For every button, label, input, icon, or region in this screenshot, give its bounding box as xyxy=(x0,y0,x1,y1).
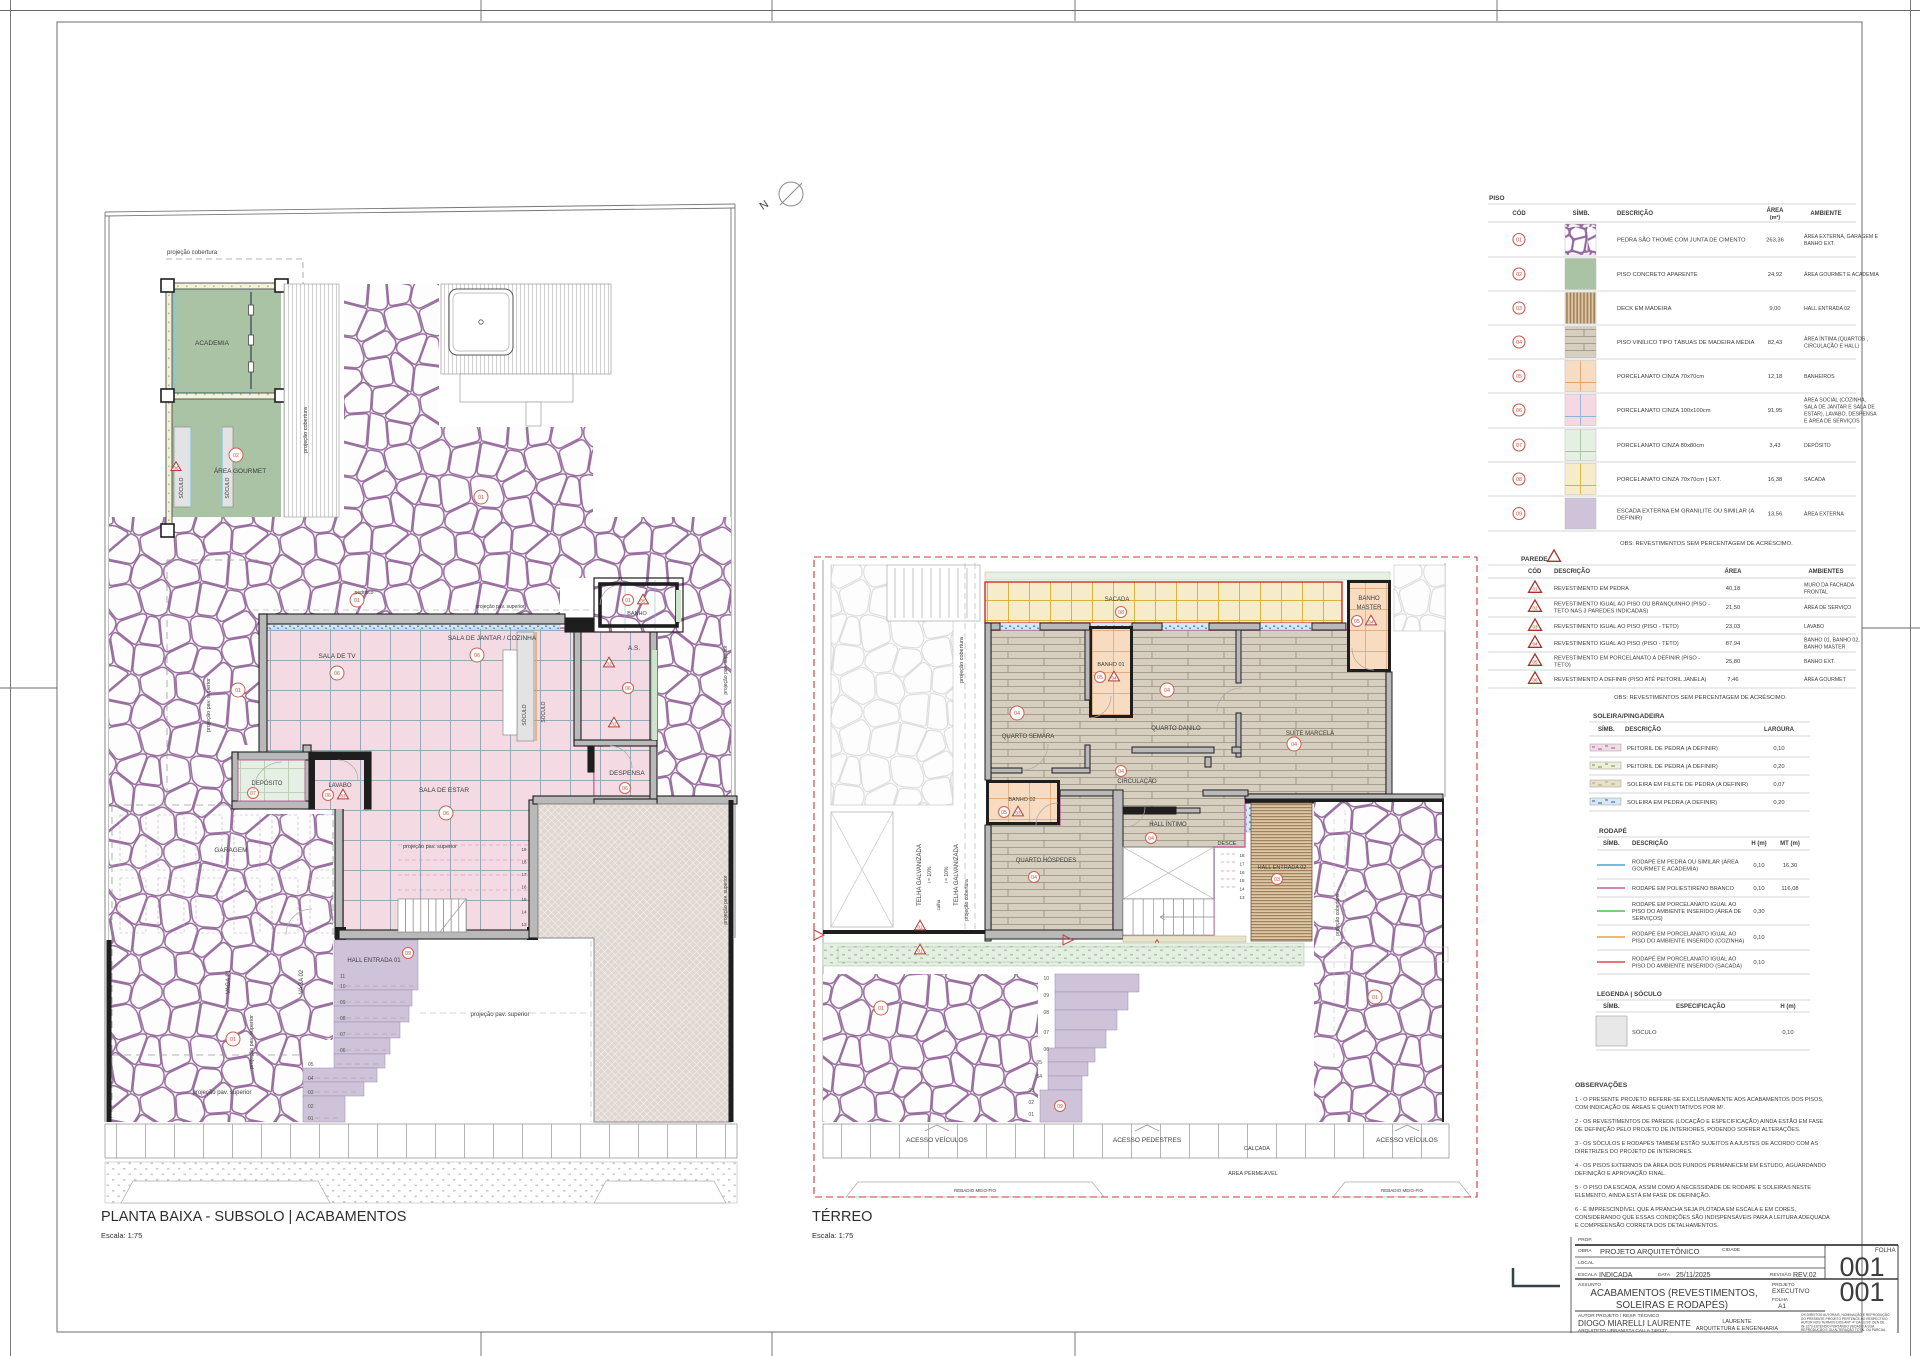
svg-text:17: 17 xyxy=(521,872,527,877)
svg-text:REVESTIMENTO EM PORCELANATO A: REVESTIMENTO EM PORCELANATO A DEFINIR (P… xyxy=(1554,656,1700,662)
svg-text:SACADA: SACADA xyxy=(1804,477,1826,483)
svg-text:9,00: 9,00 xyxy=(1769,306,1780,312)
svg-text:82,43: 82,43 xyxy=(1768,340,1783,346)
svg-text:CÓD: CÓD xyxy=(1528,567,1542,575)
svg-text:PISO: PISO xyxy=(1489,195,1505,202)
svg-text:ÁREA ÍNTIMA (QUARTOS ,: ÁREA ÍNTIMA (QUARTOS , xyxy=(1804,336,1868,343)
svg-text:01: 01 xyxy=(878,1006,884,1012)
svg-text:03: 03 xyxy=(1532,625,1538,630)
svg-text:DIRETRIZES DO PROJETO DE INTER: DIRETRIZES DO PROJETO DE INTERIORES. xyxy=(1575,1149,1693,1155)
svg-text:projeção pav. superior: projeção pav. superior xyxy=(206,678,212,732)
svg-text:09: 09 xyxy=(340,1000,346,1006)
svg-text:ACESSO VEÍCULOS: ACESSO VEÍCULOS xyxy=(906,1135,968,1144)
svg-text:AUTOR PROJETO / RESP. TÉCNICO: AUTOR PROJETO / RESP. TÉCNICO xyxy=(1578,1312,1659,1319)
svg-text:BANHEIROS: BANHEIROS xyxy=(1804,374,1835,380)
svg-text:BANHO 01, BANHO 02,: BANHO 01, BANHO 02, xyxy=(1804,638,1860,644)
svg-text:HALL ÍNTIMO: HALL ÍNTIMO xyxy=(1149,821,1187,828)
svg-text:SÓCULO: SÓCULO xyxy=(540,701,547,722)
svg-text:REVISÃO: REVISÃO xyxy=(1770,1271,1792,1278)
svg-text:05: 05 xyxy=(1097,675,1103,681)
svg-text:BANHO EXT.: BANHO EXT. xyxy=(1804,241,1835,247)
svg-text:13: 13 xyxy=(1239,895,1245,900)
svg-text:01: 01 xyxy=(917,949,923,954)
svg-text:08: 08 xyxy=(340,1016,346,1022)
svg-text:INDICADA: INDICADA xyxy=(1599,1272,1633,1279)
svg-text:05: 05 xyxy=(1516,374,1522,380)
svg-text:TETO NAS 3 PAREDES INDICADAS): TETO NAS 3 PAREDES INDICADAS) xyxy=(1554,609,1648,615)
svg-text:EXECUTIVO: EXECUTIVO xyxy=(1772,1288,1810,1295)
svg-text:projeção pav. superior: projeção pav. superior xyxy=(403,844,457,850)
svg-text:RODAPÉ EM POLIESTIRENO BRANCO: RODAPÉ EM POLIESTIRENO BRANCO xyxy=(1632,885,1735,892)
svg-text:06: 06 xyxy=(325,793,331,799)
svg-text:03: 03 xyxy=(340,794,346,799)
svg-text:AMBIENTES: AMBIENTES xyxy=(1808,569,1843,575)
svg-text:CONSIDERANDO QUE ESSAS CONDIÇÕ: CONSIDERANDO QUE ESSAS CONDIÇÕES SÃO IND… xyxy=(1575,1214,1830,1221)
svg-text:15: 15 xyxy=(521,897,527,902)
svg-text:DEFINIÇÃO E APROVAÇÃO FINAL.: DEFINIÇÃO E APROVAÇÃO FINAL. xyxy=(1575,1170,1666,1177)
svg-text:REBADIO MEIO-FIO: REBADIO MEIO-FIO xyxy=(1381,1188,1424,1193)
svg-text:E COMPREENSÃO CORRETA DOS DETA: E COMPREENSÃO CORRETA DOS DETALHAMENTOS. xyxy=(1575,1222,1719,1229)
svg-text:12,18: 12,18 xyxy=(1768,374,1783,380)
svg-text:25/11/2025: 25/11/2025 xyxy=(1676,1272,1711,1279)
svg-text:ACESSO VEÍCULOS: ACESSO VEÍCULOS xyxy=(1376,1135,1438,1144)
svg-text:0,30: 0,30 xyxy=(1753,909,1764,915)
svg-text:(m²): (m²) xyxy=(1770,214,1781,221)
svg-text:ESCADA EXTERNA EM GRANILITE OU: ESCADA EXTERNA EM GRANILITE OU SIMILAR (… xyxy=(1617,509,1754,515)
svg-text:14: 14 xyxy=(521,910,527,915)
svg-text:REPRODUÇÃO E OU ALTERAÇÃO TOTA: REPRODUÇÃO E OU ALTERAÇÃO TOTAL OU PARCI… xyxy=(1801,1327,1887,1332)
svg-text:CIDADE: CIDADE xyxy=(1722,1247,1740,1253)
svg-text:ESTAR), LAVABO, DESPENSA: ESTAR), LAVABO, DESPENSA xyxy=(1804,412,1877,418)
svg-text:04: 04 xyxy=(1036,1074,1042,1080)
svg-text:03: 03 xyxy=(1274,877,1280,883)
svg-text:01: 01 xyxy=(478,495,484,501)
svg-text:projeção pav. superior: projeção pav. superior xyxy=(249,1015,255,1069)
svg-text:16,30: 16,30 xyxy=(1783,863,1798,869)
svg-text:14: 14 xyxy=(1239,887,1245,892)
svg-text:SÍMB.: SÍMB. xyxy=(1598,725,1615,733)
svg-text:01: 01 xyxy=(917,925,923,930)
svg-text:PAREDE: PAREDE xyxy=(1521,556,1548,563)
svg-text:13: 13 xyxy=(521,922,527,927)
svg-text:MT (m): MT (m) xyxy=(1780,841,1800,847)
svg-text:ÁREA PERMEÁVEL: ÁREA PERMEÁVEL xyxy=(1228,1170,1278,1177)
svg-text:02: 02 xyxy=(308,1104,314,1110)
svg-text:04: 04 xyxy=(1014,711,1020,717)
svg-text:03: 03 xyxy=(308,1090,314,1096)
svg-text:5 - O PISO DA ESCADA, ASSIM CO: 5 - O PISO DA ESCADA, ASSIM COMO A NECES… xyxy=(1575,1184,1811,1191)
svg-text:DESCRIÇÃO: DESCRIÇÃO xyxy=(1632,840,1668,847)
svg-text:0,20: 0,20 xyxy=(1773,764,1784,770)
svg-text:ÁREA EXTERNA, GARAGEM E: ÁREA EXTERNA, GARAGEM E xyxy=(1804,233,1879,240)
svg-text:1 - O PRESENTE PROJETO REFERE-: 1 - O PRESENTE PROJETO REFERE-SE EXCLUSI… xyxy=(1575,1097,1824,1103)
svg-text:01: 01 xyxy=(625,598,631,604)
svg-text:07: 07 xyxy=(1043,1030,1049,1036)
svg-text:04: 04 xyxy=(1532,642,1538,647)
svg-text:QUARTO HÓSPEDES: QUARTO HÓSPEDES xyxy=(1016,857,1076,864)
svg-text:PEITORIL DE PEDRA (A DEFINIR): PEITORIL DE PEDRA (A DEFINIR) xyxy=(1627,746,1718,752)
svg-text:SÍMB.: SÍMB. xyxy=(1573,209,1590,217)
svg-text:ACADEMIA: ACADEMIA xyxy=(195,340,230,347)
svg-text:COM INDICAÇÃO DE ÁREAS E QUANT: COM INDICAÇÃO DE ÁREAS E QUANTITATIVOS P… xyxy=(1575,1104,1725,1111)
svg-text:0,10: 0,10 xyxy=(1753,935,1764,941)
svg-text:PISO DO AMBIENTE INSERIDO (CO: PISO DO AMBIENTE INSERIDO (COZINHA) xyxy=(1632,939,1744,945)
svg-text:3,43: 3,43 xyxy=(1769,443,1780,449)
svg-text:87,94: 87,94 xyxy=(1726,641,1741,647)
svg-text:01: 01 xyxy=(230,1037,236,1043)
svg-text:SÓCULO: SÓCULO xyxy=(224,477,231,498)
svg-text:04: 04 xyxy=(1164,688,1170,694)
svg-text:07: 07 xyxy=(1516,443,1522,449)
svg-text:OBRA: OBRA xyxy=(1578,1248,1592,1254)
svg-text:projeção cobertura: projeção cobertura xyxy=(964,879,970,921)
svg-text:05: 05 xyxy=(308,1062,314,1068)
svg-text:04: 04 xyxy=(1111,676,1117,681)
svg-text:91,95: 91,95 xyxy=(1768,408,1783,414)
svg-text:04: 04 xyxy=(1148,836,1154,842)
svg-text:OBSERVAÇÕES: OBSERVAÇÕES xyxy=(1575,1080,1628,1089)
svg-text:calha: calha xyxy=(936,899,941,910)
svg-text:DESCE: DESCE xyxy=(1218,841,1237,847)
svg-text:ELEMENTO, AINDA ESTÁ EM FASE D: ELEMENTO, AINDA ESTÁ EM FASE DE DEFINIÇÃ… xyxy=(1575,1192,1711,1199)
svg-text:16,38: 16,38 xyxy=(1768,477,1783,483)
svg-text:SOLEIRA EM FILETE DE PEDRA (A: SOLEIRA EM FILETE DE PEDRA (A DEFINIR) xyxy=(1627,782,1748,788)
svg-text:REBADIO MEIO-FIO: REBADIO MEIO-FIO xyxy=(954,1188,997,1193)
svg-text:DESPENSA: DESPENSA xyxy=(609,770,645,777)
svg-text:09: 09 xyxy=(1057,1104,1063,1110)
svg-text:06: 06 xyxy=(1532,678,1538,683)
svg-text:40,18: 40,18 xyxy=(1726,586,1741,592)
svg-text:projeção pav. superior: projeção pav. superior xyxy=(193,1090,252,1096)
svg-text:TELHA GALVANIZADA: TELHA GALVANIZADA xyxy=(954,844,960,906)
svg-text:0,07: 0,07 xyxy=(1773,782,1784,788)
svg-text:PISO VINÍLICO TIPO TÁBUAS DE M: PISO VINÍLICO TIPO TÁBUAS DE MADEIRA MÉD… xyxy=(1617,339,1754,346)
svg-text:DESCRIÇÃO: DESCRIÇÃO xyxy=(1554,568,1590,575)
svg-text:06: 06 xyxy=(625,686,631,692)
svg-text:REVESTIMENTO IGUAL AO PISO (PI: REVESTIMENTO IGUAL AO PISO (PISO - TETO) xyxy=(1554,641,1679,647)
svg-text:MURO DA FACHADA: MURO DA FACHADA xyxy=(1804,583,1855,589)
svg-text:BANHO EXT.: BANHO EXT. xyxy=(1804,659,1835,665)
svg-text:04: 04 xyxy=(1516,340,1522,346)
svg-text:AMBIENTE: AMBIENTE xyxy=(1810,211,1841,217)
svg-text:LEGENDA | SÓCULO: LEGENDA | SÓCULO xyxy=(1597,989,1662,998)
svg-text:projeção cobertura: projeção cobertura xyxy=(303,406,309,453)
svg-text:DECK EM MADEIRA: DECK EM MADEIRA xyxy=(1617,306,1672,312)
svg-text:07: 07 xyxy=(340,1032,346,1038)
svg-text:ÁREA EXTERNA: ÁREA EXTERNA xyxy=(1804,511,1844,518)
svg-text:LAURENTE: LAURENTE xyxy=(1722,1319,1752,1325)
svg-text:21,50: 21,50 xyxy=(1726,605,1741,611)
svg-text:FRONTAL: FRONTAL xyxy=(1804,590,1828,596)
svg-text:RODAPÉ EM PORCELANATO IGUAL AO: RODAPÉ EM PORCELANATO IGUAL AO xyxy=(1632,956,1737,963)
svg-text:DEPÓSITO: DEPÓSITO xyxy=(1804,442,1831,449)
svg-text:SÓCULO: SÓCULO xyxy=(1632,1029,1657,1036)
svg-text:05: 05 xyxy=(640,599,646,604)
svg-text:PISO DO AMBIENTE INSERIDO (SAC: PISO DO AMBIENTE INSERIDO (SACADA) xyxy=(1632,964,1742,970)
svg-text:116,08: 116,08 xyxy=(1781,886,1798,892)
svg-text:15: 15 xyxy=(1239,878,1245,883)
svg-text:ÁREA GOURMET E ACADEMIA: ÁREA GOURMET E ACADEMIA xyxy=(1804,271,1879,278)
svg-text:QUARTO SEMARA: QUARTO SEMARA xyxy=(1002,734,1054,740)
svg-text:Escala: 1:75: Escala: 1:75 xyxy=(812,1231,853,1240)
svg-text:ÁREA GOURMET: ÁREA GOURMET xyxy=(1804,676,1847,683)
svg-text:i = 10%: i = 10% xyxy=(944,866,950,883)
svg-text:PISO DO AMBIENTE INSERIDO (ÁR: PISO DO AMBIENTE INSERIDO (ÁREA DE xyxy=(1632,908,1742,915)
svg-text:01: 01 xyxy=(1516,238,1522,244)
svg-text:BANHO MASTER: BANHO MASTER xyxy=(1804,645,1846,651)
svg-text:SALA DE JANTAR / COZINHA: SALA DE JANTAR / COZINHA xyxy=(448,635,537,642)
svg-text:06: 06 xyxy=(622,786,628,792)
svg-text:08: 08 xyxy=(1516,477,1522,483)
svg-text:06: 06 xyxy=(173,466,179,471)
svg-text:24,92: 24,92 xyxy=(1768,272,1783,278)
svg-text:7,46: 7,46 xyxy=(1727,677,1738,683)
svg-text:PROJETO ARQUITETÔNICO: PROJETO ARQUITETÔNICO xyxy=(1600,1247,1700,1256)
svg-text:3 - OS SÓCULOS E RODAPÉS TAMBÉ: 3 - OS SÓCULOS E RODAPÉS TAMBÉM ESTÃO SU… xyxy=(1575,1140,1818,1147)
svg-text:DIOGO MIARELLI LAURENTE: DIOGO MIARELLI LAURENTE xyxy=(1578,1319,1691,1328)
svg-text:REVESTIMENTO IGUAL AO PISO (PI: REVESTIMENTO IGUAL AO PISO (PISO - TETO) xyxy=(1554,624,1679,630)
svg-text:06: 06 xyxy=(1043,1047,1049,1053)
svg-text:06: 06 xyxy=(1516,408,1522,414)
svg-text:SUÍTE MARCELA: SUÍTE MARCELA xyxy=(1286,730,1334,737)
svg-text:02: 02 xyxy=(606,662,612,667)
svg-text:pedrisco: pedrisco xyxy=(355,590,374,596)
svg-text:PEITORIL DE PEDRA (A DEFINIR): PEITORIL DE PEDRA (A DEFINIR) xyxy=(1627,764,1718,770)
svg-text:SERVIÇOS): SERVIÇOS) xyxy=(1632,916,1663,922)
svg-text:SOLEIRA EM PEDRA (A DEFINIR): SOLEIRA EM PEDRA (A DEFINIR) xyxy=(1627,800,1717,806)
svg-text:E ÁREA DE SERVIÇOS: E ÁREA DE SERVIÇOS xyxy=(1804,418,1860,425)
svg-text:0,10: 0,10 xyxy=(1753,960,1764,966)
svg-text:4 - OS PISOS EXTERNOS DA ÁREA: 4 - OS PISOS EXTERNOS DA ÁREA DOS FUNDOS… xyxy=(1575,1162,1826,1169)
svg-text:02: 02 xyxy=(1516,272,1522,278)
svg-text:TELHA GALVANIZADA: TELHA GALVANIZADA xyxy=(917,844,923,906)
svg-text:projeção cobertura: projeção cobertura xyxy=(1335,894,1341,936)
svg-text:03: 03 xyxy=(1015,811,1021,816)
svg-text:2 - OS REVESTIMENTOS DE PAREDE: 2 - OS REVESTIMENTOS DE PAREDE (LOCAÇÃO … xyxy=(1575,1118,1823,1125)
svg-text:RODAPÉ: RODAPÉ xyxy=(1599,826,1627,835)
svg-text:A1: A1 xyxy=(1778,1303,1786,1310)
svg-text:03: 03 xyxy=(1028,1088,1034,1094)
svg-text:ÁREA SOCIAL (COZINHA,: ÁREA SOCIAL (COZINHA, xyxy=(1804,397,1866,404)
svg-text:LOCAL: LOCAL xyxy=(1578,1260,1594,1266)
svg-text:05: 05 xyxy=(1532,660,1538,665)
svg-text:CALÇADA: CALÇADA xyxy=(1244,1146,1270,1152)
svg-text:H (m): H (m) xyxy=(1780,1004,1795,1010)
svg-text:07: 07 xyxy=(250,791,256,797)
svg-text:19: 19 xyxy=(521,847,527,852)
svg-text:PORCELANATO CINZA 70x70cm: PORCELANATO CINZA 70x70cm xyxy=(1617,374,1704,380)
svg-text:VAGA 01: VAGA 01 xyxy=(226,969,232,994)
svg-text:projeção pav. superior: projeção pav. superior xyxy=(723,645,729,694)
svg-text:0,10: 0,10 xyxy=(1782,1030,1793,1036)
svg-text:LAVABO: LAVABO xyxy=(328,783,351,789)
svg-text:GOURMET E ACADEMIA): GOURMET E ACADEMIA) xyxy=(1632,867,1698,873)
svg-text:ÁREA: ÁREA xyxy=(1766,207,1784,214)
svg-text:01: 01 xyxy=(354,598,360,604)
svg-text:0,10: 0,10 xyxy=(1753,863,1764,869)
svg-text:10: 10 xyxy=(1043,976,1049,982)
svg-text:09: 09 xyxy=(1043,993,1049,999)
svg-text:04: 04 xyxy=(1118,769,1124,775)
svg-text:HALL ENTRADA 01: HALL ENTRADA 01 xyxy=(347,958,401,964)
svg-text:ESPECIFICAÇÃO: ESPECIFICAÇÃO xyxy=(1676,1003,1726,1010)
svg-text:ÁREA: ÁREA xyxy=(1724,568,1742,575)
svg-text:001: 001 xyxy=(1839,1277,1884,1307)
svg-text:ÁREA GOURMET: ÁREA GOURMET xyxy=(214,466,266,475)
svg-text:SACADA: SACADA xyxy=(1105,597,1130,603)
svg-text:PROP.: PROP. xyxy=(1578,1237,1592,1243)
svg-text:13,56: 13,56 xyxy=(1768,512,1783,518)
svg-text:09: 09 xyxy=(405,951,411,957)
svg-text:0,10: 0,10 xyxy=(1753,886,1764,892)
svg-text:RODAPÉ EM PORCELANATO IGUAL AO: RODAPÉ EM PORCELANATO IGUAL AO xyxy=(1632,931,1737,938)
svg-text:01: 01 xyxy=(1532,587,1538,592)
svg-text:02: 02 xyxy=(611,722,617,727)
svg-text:6 - É IMPRESCINDÍVEL QUE A PRA: 6 - É IMPRESCINDÍVEL QUE A PRANCHA SEJA … xyxy=(1575,1206,1796,1213)
svg-text:RODAPÉ EM PORCELANATO IGUAL AO: RODAPÉ EM PORCELANATO IGUAL AO xyxy=(1632,901,1737,908)
svg-text:REV.02: REV.02 xyxy=(1793,1272,1817,1279)
svg-text:HALL ENTRADA 02: HALL ENTRADA 02 xyxy=(1804,306,1850,312)
svg-text:SOLEIRA/PINGADEIRA: SOLEIRA/PINGADEIRA xyxy=(1593,713,1665,720)
svg-text:HALL ENTRADA 02: HALL ENTRADA 02 xyxy=(1258,865,1307,871)
svg-text:ARQUITETURA E ENGENHARIA: ARQUITETURA E ENGENHARIA xyxy=(1696,1326,1779,1332)
svg-text:02: 02 xyxy=(1532,606,1538,611)
svg-text:H (m): H (m) xyxy=(1751,841,1766,847)
svg-text:BANHO 01: BANHO 01 xyxy=(1097,662,1124,668)
svg-text:263,36: 263,36 xyxy=(1766,238,1784,244)
svg-text:18: 18 xyxy=(1239,853,1245,858)
svg-text:DE DEFINIÇÃO PELO PROJETO DE I: DE DEFINIÇÃO PELO PROJETO DE INTERIORES,… xyxy=(1575,1126,1801,1133)
svg-text:SÍMB.: SÍMB. xyxy=(1603,1002,1620,1010)
svg-text:06: 06 xyxy=(474,653,480,659)
svg-text:11: 11 xyxy=(340,974,345,980)
svg-text:01: 01 xyxy=(1028,1112,1034,1118)
svg-text:SALA DE JANTAR E SALA DE: SALA DE JANTAR E SALA DE xyxy=(1804,405,1875,411)
svg-text:REVESTIMENTO IGUAL AO PISO OU: REVESTIMENTO IGUAL AO PISO OU BRANQUINHO… xyxy=(1554,602,1710,608)
svg-text:PISO CONCRETO APARENTE: PISO CONCRETO APARENTE xyxy=(1617,272,1698,278)
svg-text:Escala: 1:75: Escala: 1:75 xyxy=(101,1231,142,1240)
svg-text:VAGA 02: VAGA 02 xyxy=(299,969,305,994)
svg-text:DEFINIR): DEFINIR) xyxy=(1617,516,1642,522)
svg-text:DESCRIÇÃO: DESCRIÇÃO xyxy=(1617,210,1653,217)
svg-text:16: 16 xyxy=(521,885,527,890)
svg-text:BANHO: BANHO xyxy=(627,611,647,617)
svg-text:REVESTIMENTO EM PEDRA: REVESTIMENTO EM PEDRA xyxy=(1554,586,1629,592)
svg-text:SÓCULO: SÓCULO xyxy=(178,477,185,498)
svg-text:01: 01 xyxy=(1372,995,1378,1001)
svg-text:A.S.: A.S. xyxy=(628,645,640,652)
svg-text:OBS: REVESTIMENTOS SEM PERCENT: OBS: REVESTIMENTOS SEM PERCENTAGEM DE AC… xyxy=(1620,540,1793,547)
svg-text:DATA: DATA xyxy=(1658,1272,1671,1278)
svg-text:LARGURA: LARGURA xyxy=(1764,727,1795,733)
svg-text:CÓD: CÓD xyxy=(1512,209,1526,217)
svg-text:06: 06 xyxy=(334,671,340,677)
svg-text:04: 04 xyxy=(1368,620,1374,625)
svg-text:0,10: 0,10 xyxy=(1773,746,1784,752)
svg-text:PEDRA SÃO THOMÉ COM JUNTA DE C: PEDRA SÃO THOMÉ COM JUNTA DE CIMENTO xyxy=(1617,237,1746,244)
svg-text:25,80: 25,80 xyxy=(1726,659,1741,665)
svg-text:ÁREA DE SERVIÇO: ÁREA DE SERVIÇO xyxy=(1804,604,1851,611)
svg-text:CIRCULAÇÃO: CIRCULAÇÃO xyxy=(1117,778,1157,785)
svg-text:PORCELANATO CINZA 80x80cm: PORCELANATO CINZA 80x80cm xyxy=(1617,443,1704,449)
svg-text:PLANTA BAIXA - SUBSOLO | ACABA: PLANTA BAIXA - SUBSOLO | ACABAMENTOS xyxy=(101,1209,406,1225)
svg-text:projeção cobertura: projeção cobertura xyxy=(167,250,218,256)
svg-text:MASTER: MASTER xyxy=(1356,605,1382,611)
svg-text:0,20: 0,20 xyxy=(1773,800,1784,806)
svg-text:TÉRREO: TÉRREO xyxy=(812,1208,872,1225)
svg-text:BANHO 02: BANHO 02 xyxy=(1008,797,1035,803)
svg-text:DESCRIÇÃO: DESCRIÇÃO xyxy=(1625,726,1661,733)
svg-text:GARAGEM: GARAGEM xyxy=(214,847,247,854)
svg-text:QUARTO DANILO: QUARTO DANILO xyxy=(1151,726,1201,732)
svg-text:08: 08 xyxy=(1043,1010,1049,1016)
svg-text:04: 04 xyxy=(308,1076,314,1082)
svg-text:projeção pav. superior: projeção pav. superior xyxy=(723,875,729,924)
svg-text:04: 04 xyxy=(1291,742,1297,748)
svg-text:REVESTIMENTO A DEFINIR (PISO A: REVESTIMENTO A DEFINIR (PISO ATÉ PEITORI… xyxy=(1554,676,1707,683)
svg-text:05: 05 xyxy=(1036,1060,1042,1066)
svg-text:SALA DE ESTAR: SALA DE ESTAR xyxy=(419,787,469,794)
svg-text:i = 10%: i = 10% xyxy=(927,866,933,883)
svg-text:projeção cobertura: projeção cobertura xyxy=(959,636,965,683)
svg-text:16: 16 xyxy=(1239,870,1245,875)
svg-text:03: 03 xyxy=(1516,306,1522,312)
svg-text:PORCELANATO CINZA 100x100cm: PORCELANATO CINZA 100x100cm xyxy=(1617,408,1711,414)
svg-text:05: 05 xyxy=(1001,810,1007,816)
svg-text:23,03: 23,03 xyxy=(1726,624,1741,630)
svg-text:18: 18 xyxy=(521,860,527,865)
svg-text:09: 09 xyxy=(1516,512,1522,518)
svg-text:08: 08 xyxy=(1118,610,1124,616)
svg-text:02: 02 xyxy=(233,453,239,459)
svg-text:05: 05 xyxy=(1354,619,1360,625)
svg-text:SÓCULO: SÓCULO xyxy=(521,704,528,725)
svg-text:ACESSO PEDESTRES: ACESSO PEDESTRES xyxy=(1113,1137,1182,1144)
svg-text:SOLEIRAS E RODAPÉS): SOLEIRAS E RODAPÉS) xyxy=(1616,1300,1728,1311)
svg-text:ACABAMENTOS (REVESTIMENTOS,: ACABAMENTOS (REVESTIMENTOS, xyxy=(1590,1288,1757,1299)
svg-text:PORCELANATO CINZA 70x70cm | EX: PORCELANATO CINZA 70x70cm | EXT. xyxy=(1617,477,1721,483)
svg-text:10: 10 xyxy=(340,984,346,990)
svg-text:BANHO: BANHO xyxy=(1358,596,1380,602)
svg-text:projeção pav. superior: projeção pav. superior xyxy=(475,604,524,610)
svg-text:01: 01 xyxy=(235,688,241,694)
svg-text:SALA DE TV: SALA DE TV xyxy=(318,653,356,660)
svg-text:OBS: REVESTIMENTOS SEM PERCENT: OBS: REVESTIMENTOS SEM PERCENTAGEM DE AC… xyxy=(1614,694,1787,701)
svg-text:LAVABO: LAVABO xyxy=(1804,624,1824,630)
svg-text:02: 02 xyxy=(1028,1100,1034,1106)
svg-text:06: 06 xyxy=(443,811,449,817)
svg-text:17: 17 xyxy=(1239,861,1245,866)
svg-text:DEPÓSITO: DEPÓSITO xyxy=(252,780,283,787)
svg-text:ESCALA: ESCALA xyxy=(1578,1272,1598,1278)
svg-text:06: 06 xyxy=(340,1048,346,1054)
svg-text:RODAPÉ EM PEDRA OU SIMILAR (ÁR: RODAPÉ EM PEDRA OU SIMILAR (ÁREA xyxy=(1632,859,1739,866)
svg-text:01: 01 xyxy=(308,1116,314,1122)
svg-text:SÍMB.: SÍMB. xyxy=(1603,839,1620,847)
svg-text:CIRCULAÇÃO E HALL): CIRCULAÇÃO E HALL) xyxy=(1804,343,1859,350)
svg-text:TETO): TETO) xyxy=(1554,663,1571,669)
svg-text:04: 04 xyxy=(1031,875,1037,881)
svg-text:ARQUITETO URBANISTA CAU A 7481: ARQUITETO URBANISTA CAU A 748137 xyxy=(1578,1328,1667,1334)
